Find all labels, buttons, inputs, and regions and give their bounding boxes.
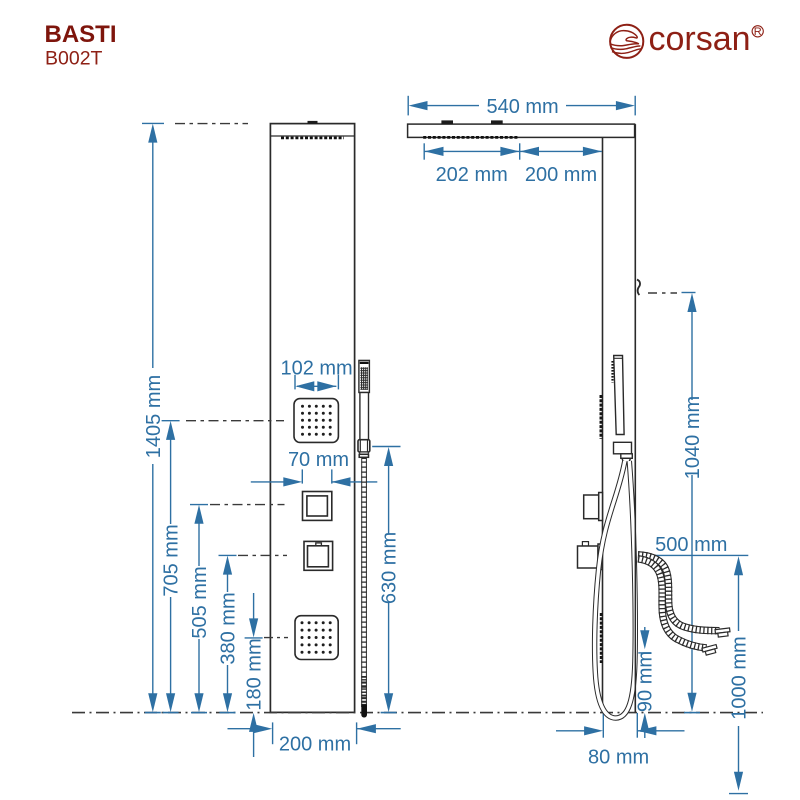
svg-text:200 mm: 200 mm: [279, 734, 351, 756]
svg-text:1405 mm: 1405 mm: [143, 375, 165, 458]
svg-text:1040 mm: 1040 mm: [682, 396, 704, 479]
svg-text:BASTI: BASTI: [45, 21, 117, 48]
svg-text:380 mm: 380 mm: [218, 592, 240, 664]
svg-text:500 mm: 500 mm: [655, 534, 727, 556]
svg-text:B002T: B002T: [45, 48, 103, 70]
svg-text:200 mm: 200 mm: [525, 164, 597, 186]
svg-text:80 mm: 80 mm: [588, 747, 649, 769]
svg-text:corsan: corsan: [649, 20, 751, 58]
svg-text:70 mm: 70 mm: [288, 449, 349, 471]
svg-text:102 mm: 102 mm: [280, 358, 352, 380]
svg-text:202 mm: 202 mm: [436, 164, 508, 186]
svg-text:540 mm: 540 mm: [486, 96, 558, 118]
svg-text:630 mm: 630 mm: [379, 532, 401, 604]
svg-text:1000 mm: 1000 mm: [729, 636, 751, 719]
svg-text:180 mm: 180 mm: [244, 638, 266, 710]
svg-text:505 mm: 505 mm: [189, 566, 211, 638]
svg-text:R: R: [754, 26, 762, 38]
svg-text:705 mm: 705 mm: [161, 524, 183, 596]
